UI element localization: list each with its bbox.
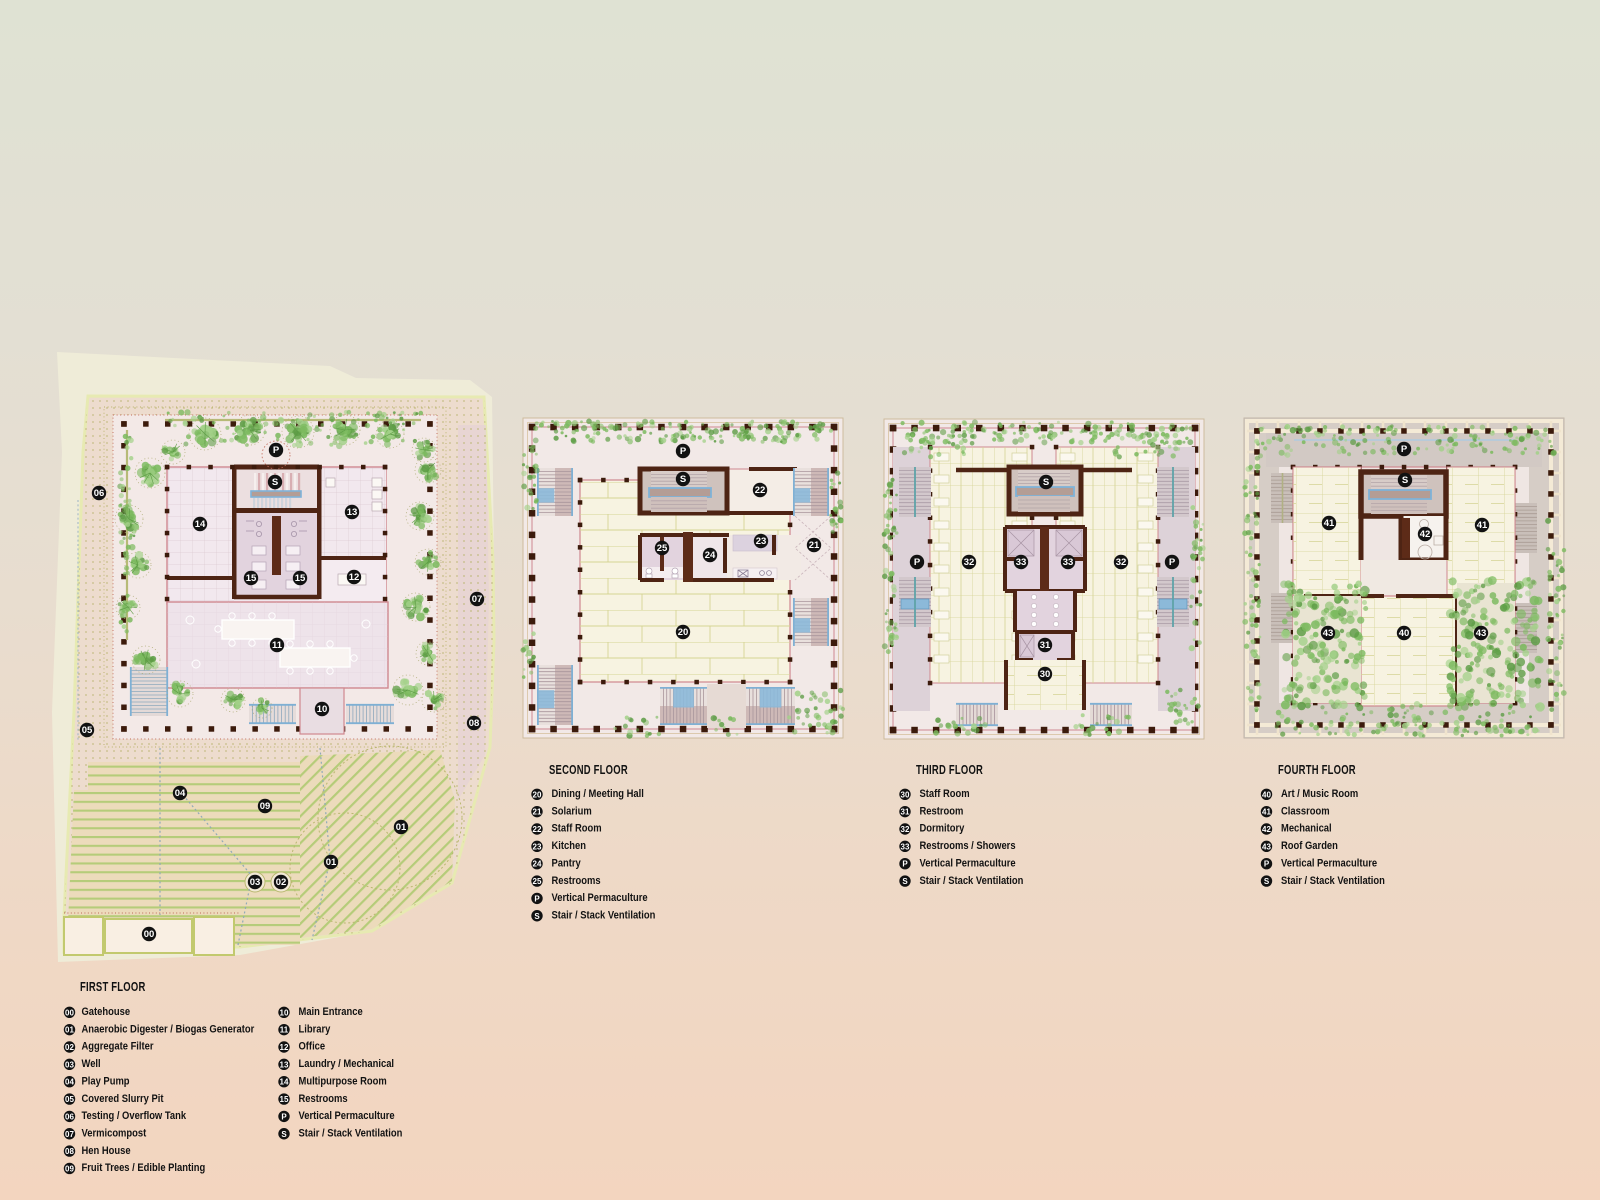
- svg-text:24: 24: [705, 550, 716, 561]
- svg-text:02: 02: [276, 877, 287, 888]
- svg-text:23: 23: [533, 842, 542, 851]
- svg-text:Covered Slurry Pit: Covered Slurry Pit: [82, 1093, 164, 1105]
- svg-text:S: S: [680, 474, 686, 485]
- svg-text:Pantry: Pantry: [552, 858, 581, 870]
- svg-text:Anaerobic Digester / Biogas Ge: Anaerobic Digester / Biogas Generator: [82, 1024, 255, 1036]
- svg-text:Office: Office: [299, 1041, 326, 1053]
- svg-text:Hen House: Hen House: [82, 1145, 131, 1157]
- svg-text:Restrooms: Restrooms: [299, 1093, 348, 1105]
- svg-text:P: P: [534, 894, 540, 903]
- svg-text:30: 30: [901, 790, 910, 799]
- svg-text:40: 40: [1262, 790, 1271, 799]
- svg-text:S: S: [534, 912, 540, 921]
- svg-text:S: S: [1043, 477, 1049, 488]
- svg-text:04: 04: [175, 788, 186, 799]
- svg-text:Staff Room: Staff Room: [552, 823, 602, 835]
- svg-text:00: 00: [65, 1008, 74, 1017]
- svg-text:40: 40: [1399, 628, 1410, 639]
- svg-text:15: 15: [295, 573, 306, 584]
- svg-text:30: 30: [1040, 669, 1051, 680]
- svg-text:05: 05: [65, 1095, 74, 1104]
- svg-text:43: 43: [1476, 628, 1487, 639]
- svg-text:Multipurpose Room: Multipurpose Room: [299, 1076, 387, 1088]
- svg-text:06: 06: [65, 1112, 74, 1121]
- svg-text:P: P: [1401, 444, 1408, 455]
- svg-text:P: P: [281, 1112, 287, 1121]
- svg-text:Well: Well: [82, 1058, 101, 1070]
- svg-text:03: 03: [250, 877, 261, 888]
- svg-text:20: 20: [533, 790, 542, 799]
- svg-text:FOURTH FLOOR: FOURTH FLOOR: [1278, 764, 1356, 778]
- svg-text:12: 12: [349, 572, 360, 583]
- svg-text:43: 43: [1262, 842, 1271, 851]
- svg-text:08: 08: [469, 718, 480, 729]
- svg-text:04: 04: [65, 1078, 74, 1087]
- svg-text:Vertical Permaculture: Vertical Permaculture: [552, 892, 648, 904]
- svg-text:31: 31: [901, 808, 910, 817]
- svg-text:20: 20: [678, 627, 689, 638]
- svg-text:42: 42: [1262, 825, 1271, 834]
- svg-text:Stair / Stack Ventilation: Stair / Stack Ventilation: [920, 875, 1024, 887]
- svg-text:10: 10: [317, 704, 328, 715]
- svg-text:Vermicompost: Vermicompost: [82, 1128, 147, 1140]
- svg-text:S: S: [281, 1130, 287, 1139]
- svg-text:22: 22: [755, 485, 766, 496]
- svg-text:Dormitory: Dormitory: [920, 823, 965, 835]
- svg-text:23: 23: [756, 536, 767, 547]
- svg-text:Library: Library: [299, 1024, 331, 1036]
- svg-text:P: P: [1169, 557, 1176, 568]
- svg-text:S: S: [1264, 877, 1270, 886]
- svg-text:00: 00: [144, 929, 155, 940]
- svg-text:05: 05: [82, 725, 93, 736]
- svg-text:01: 01: [326, 857, 337, 868]
- svg-text:21: 21: [533, 808, 542, 817]
- svg-text:41: 41: [1262, 808, 1271, 817]
- svg-text:25: 25: [657, 543, 668, 554]
- svg-text:32: 32: [964, 557, 975, 568]
- svg-text:15: 15: [280, 1095, 289, 1104]
- svg-text:Classroom: Classroom: [1281, 806, 1330, 818]
- svg-text:S: S: [902, 877, 908, 886]
- svg-text:Play Pump: Play Pump: [82, 1076, 130, 1088]
- svg-text:Vertical Permaculture: Vertical Permaculture: [1281, 858, 1377, 870]
- svg-text:Stair / Stack Ventilation: Stair / Stack Ventilation: [552, 910, 656, 922]
- svg-text:33: 33: [1063, 557, 1074, 568]
- svg-text:Laundry / Mechanical: Laundry / Mechanical: [299, 1058, 395, 1070]
- svg-text:43: 43: [1323, 628, 1334, 639]
- svg-text:07: 07: [65, 1130, 74, 1139]
- svg-text:Restrooms / Showers: Restrooms / Showers: [920, 840, 1016, 852]
- svg-text:11: 11: [272, 640, 283, 651]
- svg-text:Staff Room: Staff Room: [920, 788, 970, 800]
- svg-text:Dining / Meeting Hall: Dining / Meeting Hall: [552, 788, 645, 800]
- svg-text:33: 33: [1016, 557, 1027, 568]
- svg-text:07: 07: [472, 594, 483, 605]
- svg-text:P: P: [1264, 860, 1270, 869]
- svg-text:P: P: [902, 860, 908, 869]
- svg-text:41: 41: [1324, 518, 1335, 529]
- svg-text:41: 41: [1477, 520, 1488, 531]
- svg-text:Aggregate Filter: Aggregate Filter: [82, 1041, 154, 1053]
- svg-text:Vertical Permaculture: Vertical Permaculture: [920, 858, 1016, 870]
- svg-text:S: S: [1402, 475, 1408, 486]
- svg-text:14: 14: [195, 519, 206, 530]
- svg-text:12: 12: [280, 1043, 289, 1052]
- svg-text:06: 06: [94, 488, 105, 499]
- svg-text:SECOND FLOOR: SECOND FLOOR: [549, 764, 628, 778]
- svg-text:P: P: [273, 445, 280, 456]
- svg-text:14: 14: [280, 1078, 289, 1087]
- svg-text:Gatehouse: Gatehouse: [82, 1006, 131, 1018]
- svg-text:25: 25: [533, 877, 542, 886]
- svg-text:Main Entrance: Main Entrance: [299, 1006, 363, 1018]
- svg-text:13: 13: [347, 507, 358, 518]
- svg-text:Solarium: Solarium: [552, 806, 592, 818]
- svg-text:Roof Garden: Roof Garden: [1281, 840, 1338, 852]
- svg-text:08: 08: [65, 1147, 74, 1156]
- svg-text:01: 01: [396, 822, 407, 833]
- svg-text:Fruit Trees / Edible Planting: Fruit Trees / Edible Planting: [82, 1162, 206, 1174]
- svg-text:Vertical Permaculture: Vertical Permaculture: [299, 1110, 395, 1122]
- svg-text:32: 32: [1116, 557, 1127, 568]
- svg-text:Kitchen: Kitchen: [552, 840, 586, 852]
- svg-text:11: 11: [280, 1026, 289, 1035]
- svg-text:01: 01: [65, 1026, 74, 1035]
- svg-text:21: 21: [809, 540, 820, 551]
- svg-text:13: 13: [280, 1060, 289, 1069]
- svg-text:THIRD FLOOR: THIRD FLOOR: [916, 764, 983, 778]
- svg-text:Stair / Stack Ventilation: Stair / Stack Ventilation: [299, 1128, 403, 1140]
- svg-text:09: 09: [260, 801, 271, 812]
- svg-text:Restrooms: Restrooms: [552, 875, 601, 887]
- svg-text:Mechanical: Mechanical: [1281, 823, 1332, 835]
- svg-text:Testing / Overflow Tank: Testing / Overflow Tank: [82, 1110, 187, 1122]
- svg-text:31: 31: [1040, 640, 1051, 651]
- svg-text:P: P: [680, 446, 687, 457]
- svg-text:P: P: [914, 557, 921, 568]
- svg-text:24: 24: [533, 860, 542, 869]
- svg-text:Art / Music Room: Art / Music Room: [1281, 788, 1358, 800]
- svg-text:09: 09: [65, 1164, 74, 1173]
- svg-text:33: 33: [901, 842, 910, 851]
- svg-text:22: 22: [533, 825, 542, 834]
- svg-text:32: 32: [901, 825, 910, 834]
- svg-text:S: S: [272, 477, 278, 488]
- svg-text:Restroom: Restroom: [920, 806, 964, 818]
- svg-text:Stair / Stack Ventilation: Stair / Stack Ventilation: [1281, 875, 1385, 887]
- svg-text:10: 10: [280, 1008, 289, 1017]
- svg-text:02: 02: [65, 1043, 74, 1052]
- svg-text:15: 15: [246, 573, 257, 584]
- svg-text:03: 03: [65, 1060, 74, 1069]
- svg-text:FIRST FLOOR: FIRST FLOOR: [80, 981, 146, 995]
- svg-text:42: 42: [1420, 529, 1431, 540]
